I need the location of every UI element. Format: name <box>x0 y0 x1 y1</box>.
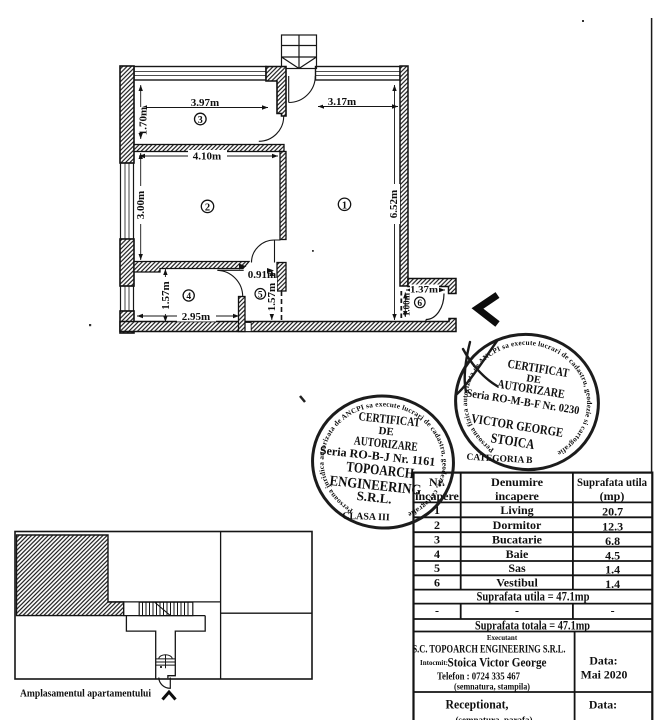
svg-text:1.57m: 1.57m <box>266 283 278 311</box>
svg-text:Suprafata utila = 47.1mp: Suprafata utila = 47.1mp <box>477 590 590 604</box>
svg-text:4.5: 4.5 <box>605 548 620 562</box>
svg-text:1.00m: 1.00m <box>402 292 412 316</box>
svg-text:6: 6 <box>434 575 440 589</box>
svg-text:-: - <box>435 604 439 618</box>
svg-text:1.4: 1.4 <box>605 563 620 577</box>
svg-text:12.3: 12.3 <box>602 519 623 533</box>
svg-text:Amplasamentul apartamentului: Amplasamentul apartamentului <box>20 688 151 700</box>
svg-text:Receptionat,: Receptionat, <box>446 698 509 712</box>
svg-text:(semnatura, stampila): (semnatura, stampila) <box>454 682 530 692</box>
svg-text:1.37m: 1.37m <box>410 286 438 296</box>
svg-text:5: 5 <box>258 290 263 300</box>
svg-text:Mai 2020: Mai 2020 <box>581 668 628 682</box>
svg-text:1.57m: 1.57m <box>160 281 172 309</box>
svg-text:2.95m: 2.95m <box>182 311 210 323</box>
svg-text:(mp): (mp) <box>600 489 625 503</box>
svg-text:Data:: Data: <box>589 698 617 712</box>
svg-text:1.4: 1.4 <box>605 577 620 591</box>
svg-text:1: 1 <box>342 200 347 211</box>
svg-text:4: 4 <box>434 547 440 561</box>
svg-text:Denumire: Denumire <box>491 475 544 489</box>
svg-text:20.7: 20.7 <box>602 505 623 519</box>
svg-text:Living: Living <box>500 503 533 517</box>
svg-text:Vestibul: Vestibul <box>496 575 538 589</box>
svg-text:Dormitor: Dormitor <box>493 518 542 532</box>
svg-text:-: - <box>611 604 615 618</box>
svg-text:incapere: incapere <box>495 489 539 503</box>
svg-text:1.70m: 1.70m <box>138 107 150 135</box>
svg-text:3.00m: 3.00m <box>135 191 147 219</box>
svg-text:Sas: Sas <box>508 561 526 575</box>
svg-text:3: 3 <box>434 532 440 546</box>
svg-text:Data:: Data: <box>589 654 617 668</box>
svg-text:S.C. TOPOARCH ENGINEERING S.R.: S.C. TOPOARCH ENGINEERING S.R.L. <box>413 644 566 656</box>
svg-text:4.10m: 4.10m <box>193 151 221 163</box>
svg-text:2: 2 <box>205 202 210 213</box>
svg-text:Executant: Executant <box>487 634 518 642</box>
svg-text:(semnatura, parafa): (semnatura, parafa) <box>456 715 533 720</box>
svg-text:6.8: 6.8 <box>605 534 620 548</box>
svg-text:3.97m: 3.97m <box>191 97 219 109</box>
svg-text:Stoica Victor George: Stoica Victor George <box>448 656 547 670</box>
svg-text:CLASA III: CLASA III <box>342 511 390 524</box>
svg-text:2: 2 <box>434 518 440 532</box>
svg-text:Suprafata totala = 47.1mp: Suprafata totala = 47.1mp <box>475 619 590 633</box>
svg-text:Bucatarie: Bucatarie <box>492 532 543 546</box>
svg-text:Baie: Baie <box>506 547 529 561</box>
svg-text:6.52m: 6.52m <box>388 190 400 218</box>
svg-text:6: 6 <box>417 299 422 309</box>
svg-text:5: 5 <box>434 561 440 575</box>
svg-text:Intocmit:: Intocmit: <box>420 659 448 667</box>
svg-text:3: 3 <box>198 115 203 126</box>
svg-text:4: 4 <box>186 292 191 302</box>
svg-text:Suprafata utila: Suprafata utila <box>577 475 647 489</box>
svg-text:3.17m: 3.17m <box>328 96 356 108</box>
svg-text:-: - <box>515 604 519 618</box>
